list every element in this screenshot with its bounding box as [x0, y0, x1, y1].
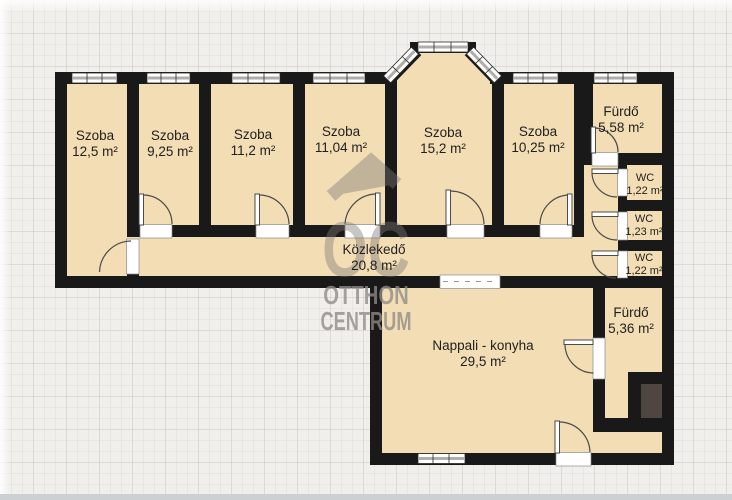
- window-room3: [232, 73, 280, 83]
- label-szoba-4-area: 11,04 m²: [315, 140, 368, 155]
- label-kozlekedo-area: 20,8 m²: [351, 258, 397, 273]
- window-room4: [313, 73, 365, 83]
- paper-edge-bottom: [0, 494, 732, 500]
- wall-bath2-left-upper: [593, 282, 605, 338]
- label-szoba-2-name: Szoba: [151, 128, 190, 143]
- label-szoba-6-name: Szoba: [519, 124, 558, 139]
- wall-div-room6-corridor: [574, 78, 584, 237]
- label-wc-3-name: WC: [635, 252, 653, 264]
- label-furdo-2-name: Fürdő: [613, 305, 648, 320]
- wall-left-outer: [55, 72, 67, 288]
- wall-wc1-wc2: [618, 200, 662, 211]
- wall-div-room1-room2: [127, 78, 139, 237]
- label-kozlekedo-name: Közlekedő: [342, 242, 405, 257]
- wall-hall-bottom-right: [500, 276, 674, 288]
- label-szoba-3-area: 11,2 m²: [231, 143, 276, 158]
- label-szoba-4-name: Szoba: [322, 124, 361, 139]
- window-room6: [513, 73, 558, 83]
- window-bath1: [594, 73, 637, 83]
- window-bay-top: [418, 42, 468, 52]
- label-wc-2-area: 1,23 m²: [625, 226, 663, 238]
- label-furdo-2-area: 5,36 m²: [608, 321, 654, 336]
- label-szoba-5-name: Szoba: [424, 125, 463, 140]
- label-wc-1-name: WC: [636, 172, 654, 184]
- paper-edge-top: [0, 0, 732, 13]
- label-nappali-name: Nappali - konyha: [432, 338, 534, 353]
- wall-bottom-outer: [370, 453, 674, 465]
- wall-div-room1-stub: [127, 272, 139, 288]
- wall-under-shaft: [593, 418, 674, 432]
- paper-edge-left: [0, 0, 10, 500]
- label-szoba-1-name: Szoba: [76, 128, 115, 143]
- floorplan-image: OC OTTHON CENTRUM Szoba 12,5 m² Szoba 9,…: [0, 0, 732, 500]
- wall-wc2-wc3: [618, 240, 662, 251]
- label-szoba-1-area: 12,5 m²: [72, 144, 118, 159]
- label-wc-3-area: 1,22 m²: [625, 265, 663, 277]
- wall-right-outer: [662, 72, 674, 465]
- opening-hall-living: [440, 275, 500, 289]
- floorplan-drawing: OC OTTHON CENTRUM Szoba 12,5 m² Szoba 9,…: [0, 0, 732, 500]
- window-living-bottom: [418, 454, 465, 464]
- label-szoba-2-area: 9,25 m²: [147, 144, 193, 159]
- wall-div-room2-room3: [199, 78, 211, 237]
- shaft-block: [641, 384, 662, 418]
- label-szoba-6-area: 10,25 m²: [511, 140, 565, 155]
- watermark-line1: OTTHON: [323, 281, 409, 310]
- window-room1: [72, 73, 117, 83]
- wall-shaft-left: [628, 372, 641, 418]
- label-wc-1-area: 1,22 m²: [626, 185, 664, 197]
- label-szoba-3-name: Szoba: [234, 127, 273, 142]
- label-nappali-area: 29,5 m²: [460, 354, 506, 369]
- watermark-line2: CENTRUM: [321, 307, 412, 336]
- label-szoba-5-area: 15,2 m²: [420, 141, 466, 156]
- label-furdo-1-area: 5,58 m²: [598, 120, 644, 135]
- wall-div-room3-room4: [293, 78, 305, 237]
- label-furdo-1-name: Fürdő: [603, 104, 638, 119]
- label-wc-2-name: WC: [635, 213, 653, 225]
- wall-div-room5-room6: [492, 78, 504, 237]
- window-room2: [147, 73, 190, 83]
